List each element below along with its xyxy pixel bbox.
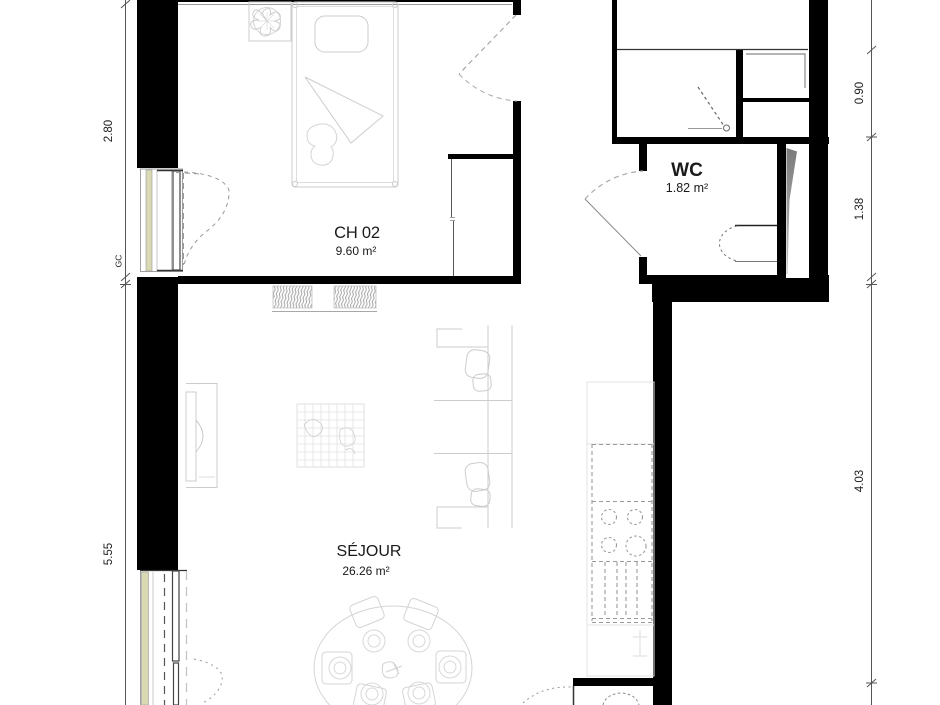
- svg-text:9.60 m²: 9.60 m²: [336, 244, 377, 258]
- svg-text:1.82 m²: 1.82 m²: [666, 181, 708, 195]
- svg-text:SÉJOUR: SÉJOUR: [337, 541, 402, 560]
- svg-text:WC: WC: [671, 160, 703, 181]
- svg-text:1.38: 1.38: [854, 198, 866, 220]
- svg-text:0.90: 0.90: [854, 82, 866, 104]
- svg-text:26.26 m²: 26.26 m²: [342, 564, 389, 578]
- svg-text:CH 02: CH 02: [334, 224, 380, 242]
- svg-text:4.03: 4.03: [854, 470, 866, 492]
- svg-text:5.55: 5.55: [103, 543, 115, 565]
- svg-text:GC: GC: [114, 255, 124, 268]
- svg-text:2.80: 2.80: [103, 120, 115, 142]
